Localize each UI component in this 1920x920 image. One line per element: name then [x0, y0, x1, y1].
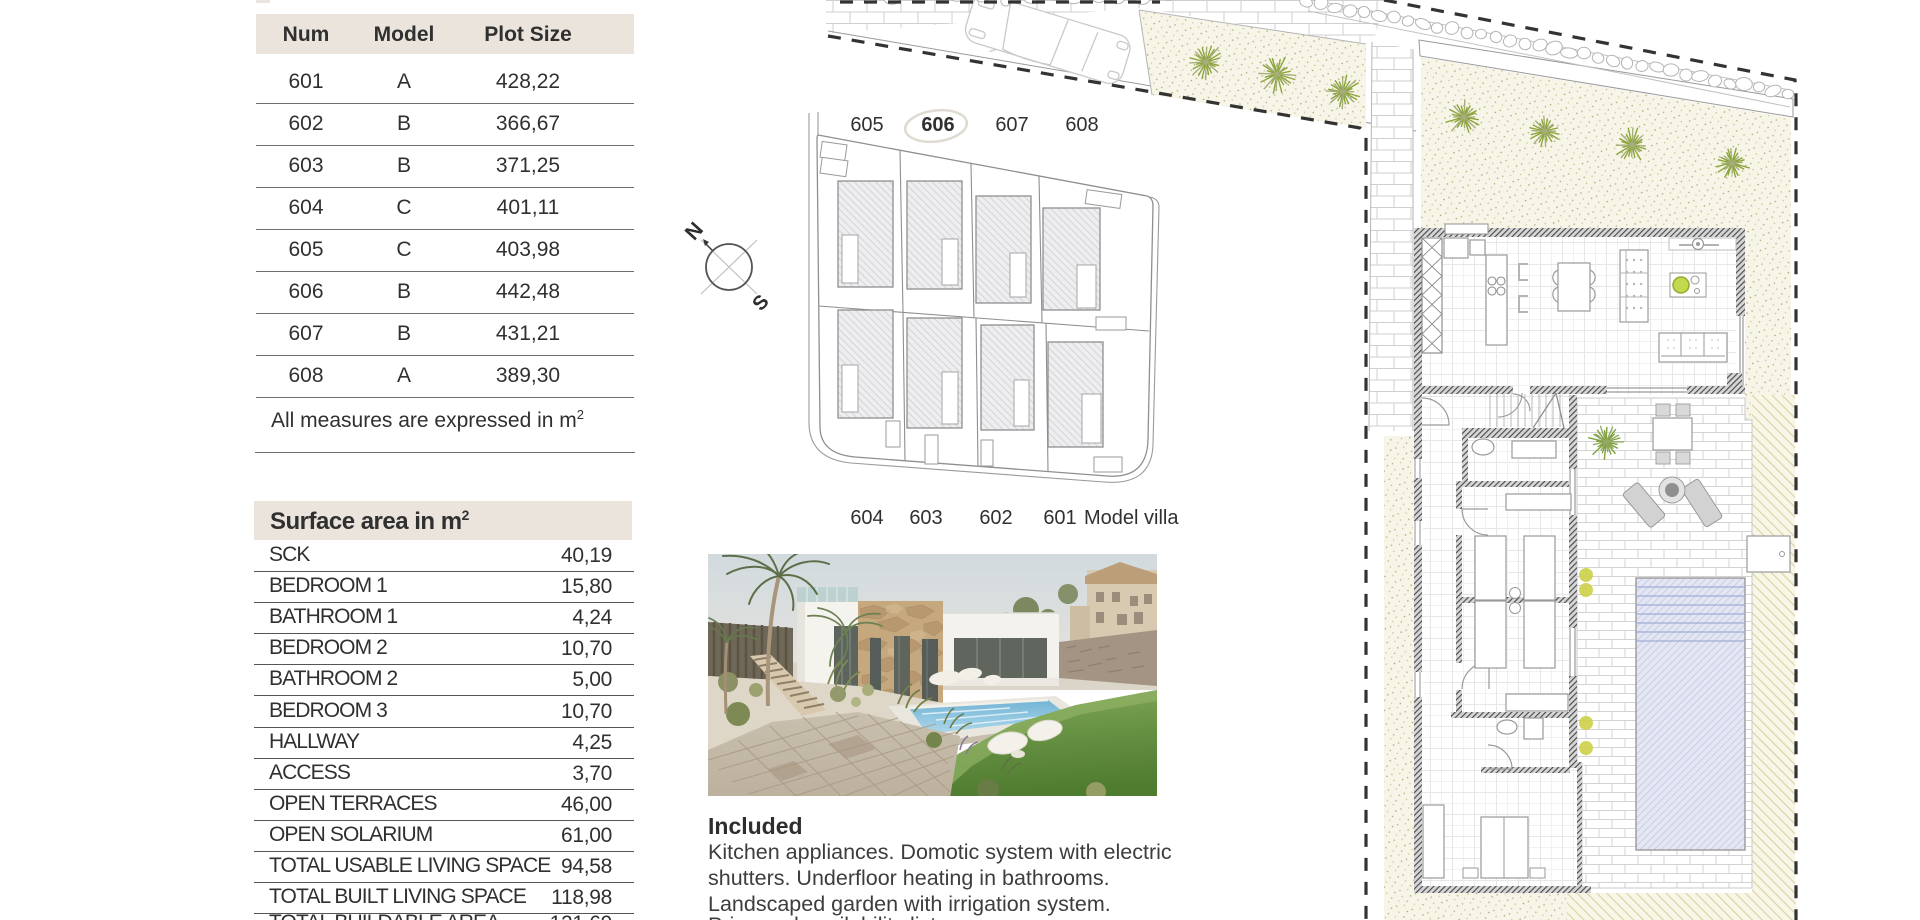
- svg-text:S: S: [748, 291, 773, 316]
